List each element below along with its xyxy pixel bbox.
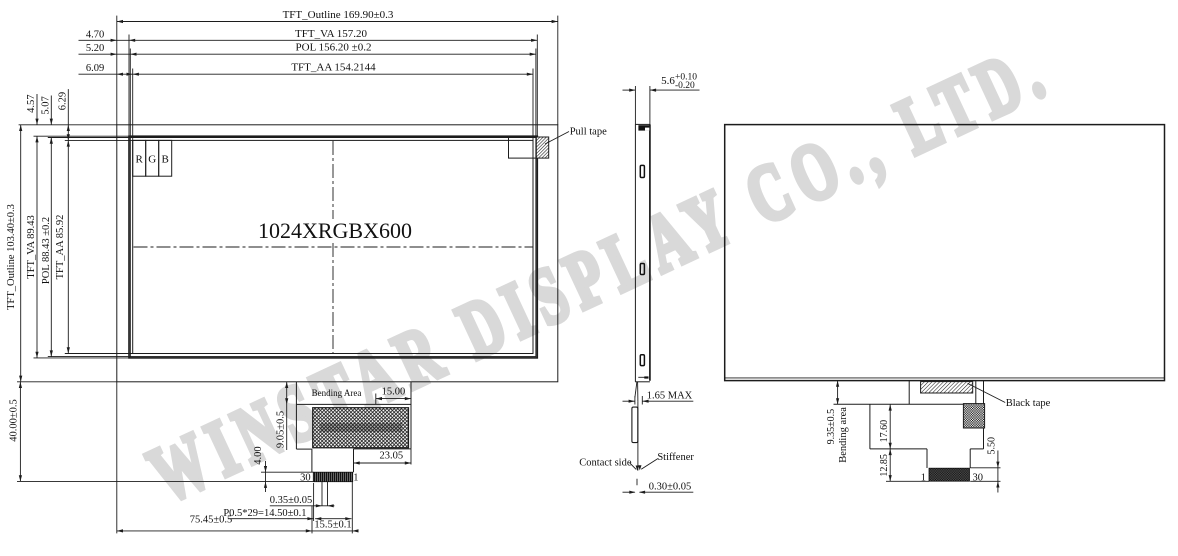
svg-text:15.5±0.1: 15.5±0.1 (314, 519, 351, 530)
svg-text:23.05: 23.05 (379, 451, 403, 462)
svg-text:9.35±0.5: 9.35±0.5 (826, 409, 837, 445)
svg-text:TFT_AA 154.2144: TFT_AA 154.2144 (291, 62, 376, 74)
svg-text:-0.20: -0.20 (675, 81, 695, 91)
svg-text:30: 30 (973, 473, 984, 484)
svg-text:TFT_AA 85.92: TFT_AA 85.92 (55, 215, 66, 280)
svg-text:4.57: 4.57 (26, 95, 37, 113)
svg-text:17.60: 17.60 (879, 420, 890, 443)
svg-text:0.30±0.05: 0.30±0.05 (649, 482, 692, 493)
svg-text:Bending area: Bending area (838, 407, 849, 463)
svg-text:1: 1 (921, 473, 926, 484)
svg-text:Contact side: Contact side (579, 457, 632, 468)
svg-text:5.50: 5.50 (987, 437, 998, 455)
svg-text:12.85: 12.85 (879, 454, 890, 477)
svg-text:POL 88.43 ±0.2: POL 88.43 ±0.2 (41, 217, 52, 284)
svg-text:15.00: 15.00 (382, 386, 406, 397)
svg-text:Stiffener: Stiffener (657, 452, 694, 463)
svg-text:POL 156.20 ±0.2: POL 156.20 ±0.2 (296, 42, 372, 54)
svg-text:TFT_VA 89.43: TFT_VA 89.43 (26, 215, 37, 278)
svg-text:1024XRGBX600: 1024XRGBX600 (258, 218, 412, 243)
svg-text:40.00±0.5: 40.00±0.5 (8, 399, 19, 442)
svg-text:Bending Area: Bending Area (312, 388, 362, 398)
svg-text:R: R (136, 154, 144, 166)
svg-text:4.00: 4.00 (253, 446, 264, 464)
svg-text:WINSTAR DISPLAY CO., LTD.: WINSTAR DISPLAY CO., LTD. (136, 28, 1055, 520)
svg-text:G: G (148, 154, 156, 166)
svg-text:TFT_Outline 103.40±0.3: TFT_Outline 103.40±0.3 (6, 204, 17, 310)
svg-text:1.65 MAX: 1.65 MAX (647, 391, 693, 402)
svg-text:Black tape: Black tape (1006, 398, 1051, 409)
svg-text:5.07: 5.07 (41, 96, 52, 114)
svg-text:5.20: 5.20 (86, 43, 104, 54)
svg-text:30: 30 (300, 473, 311, 484)
svg-text:Pull tape: Pull tape (570, 127, 607, 138)
svg-text:5.6: 5.6 (661, 75, 675, 87)
svg-text:B: B (162, 154, 169, 166)
svg-text:TFT_Outline 169.90±0.3: TFT_Outline 169.90±0.3 (283, 9, 394, 21)
svg-text:0.35±0.05: 0.35±0.05 (270, 495, 313, 506)
svg-text:4.70: 4.70 (86, 29, 104, 40)
svg-text:75.45±0.5: 75.45±0.5 (190, 514, 233, 525)
svg-text:TFT_VA 157.20: TFT_VA 157.20 (295, 28, 367, 40)
svg-text:P0.5*29=14.50±0.1: P0.5*29=14.50±0.1 (223, 508, 306, 519)
svg-text:1: 1 (353, 473, 358, 484)
svg-text:9.05±0.5: 9.05±0.5 (275, 411, 286, 448)
svg-text:6.09: 6.09 (86, 63, 104, 74)
svg-text:6.29: 6.29 (58, 92, 69, 110)
